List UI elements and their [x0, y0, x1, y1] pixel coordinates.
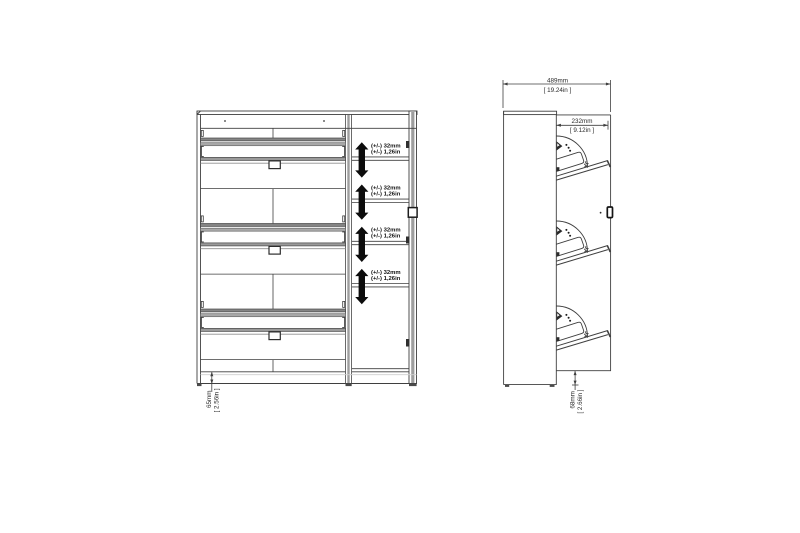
- svg-text:489mm: 489mm: [547, 77, 568, 84]
- svg-text:(+/-) 1,26in: (+/-) 1,26in: [371, 234, 401, 240]
- svg-text:(+/-) 1,26in: (+/-) 1,26in: [371, 192, 401, 198]
- svg-text:68mm: 68mm: [569, 391, 576, 409]
- svg-text:[ 2.56in ]: [ 2.56in ]: [214, 388, 221, 412]
- svg-text:[ 19.24in ]: [ 19.24in ]: [544, 87, 572, 94]
- svg-text:[ 9.12in ]: [ 9.12in ]: [570, 127, 594, 134]
- svg-text:65mm: 65mm: [206, 391, 213, 409]
- svg-text:232mm: 232mm: [572, 118, 593, 125]
- svg-text:(+/-) 1,26in: (+/-) 1,26in: [371, 276, 401, 282]
- svg-text:(+/-) 1,26in: (+/-) 1,26in: [371, 149, 401, 155]
- svg-text:[ 2.66in ]: [ 2.66in ]: [577, 389, 584, 413]
